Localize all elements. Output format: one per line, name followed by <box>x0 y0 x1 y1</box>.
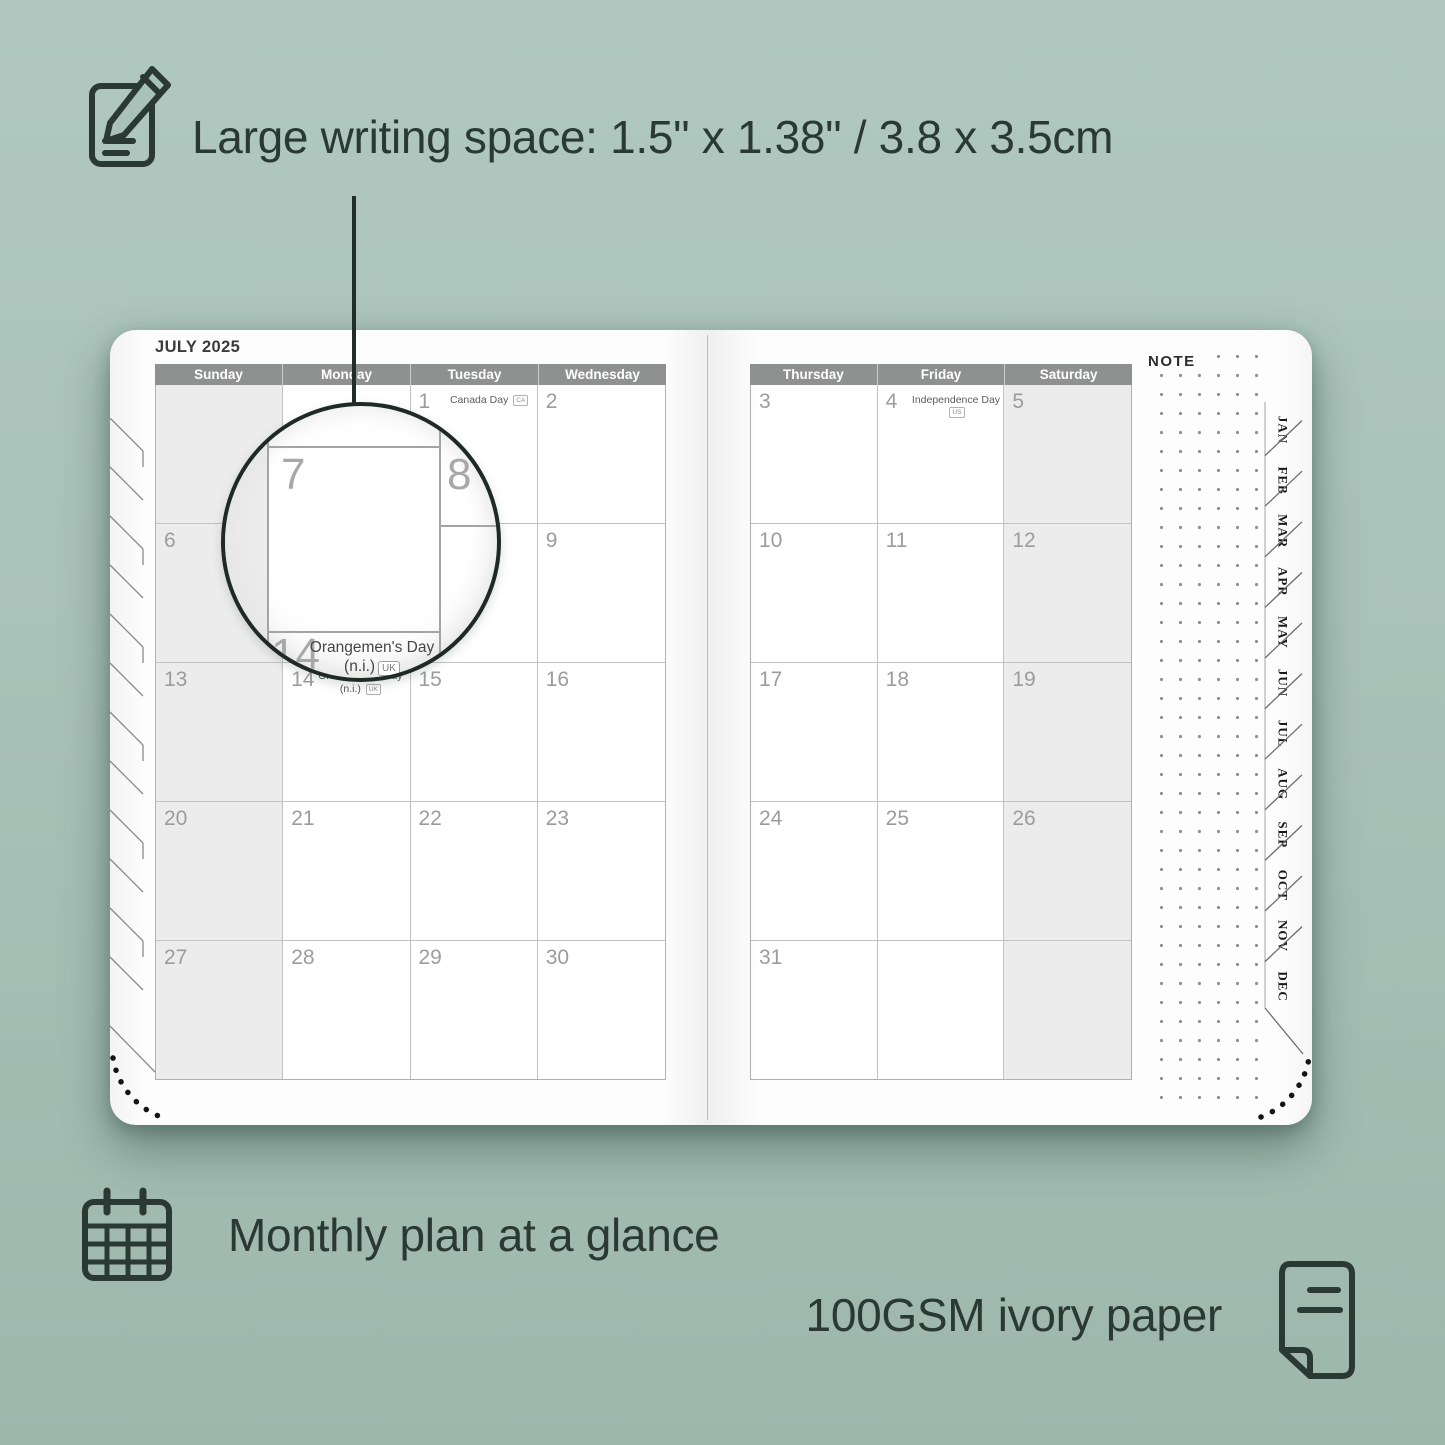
chevron-line <box>110 516 143 549</box>
date-number: 31 <box>759 946 782 970</box>
calendar-cell-13: 13 <box>156 663 283 802</box>
calendar-cell-23: 23 <box>538 802 665 941</box>
date-number: 11 <box>886 529 908 553</box>
chevron-line <box>110 467 143 500</box>
chevron-line <box>110 418 143 451</box>
date-number: 16 <box>546 668 569 692</box>
paper-sheet-icon <box>1272 1258 1360 1387</box>
calendar-cell-3: 3 <box>751 385 878 524</box>
month-tab-feb: FEB <box>1276 466 1291 494</box>
date-number: 1 <box>419 390 431 414</box>
day-header-row: ThursdayFridaySaturday <box>750 364 1132 385</box>
calendar-cell-15: 15 <box>411 663 538 802</box>
month-tab-jan: JAN <box>1276 416 1291 444</box>
note-label: NOTE <box>1148 353 1201 370</box>
holiday-label: Independence Day US <box>912 394 1001 418</box>
date-number: 4 <box>886 390 898 414</box>
month-tab-oct: OCT <box>1276 870 1291 901</box>
date-number: 20 <box>164 807 187 831</box>
date-number: 13 <box>164 668 187 692</box>
calendar-cell-31: 31 <box>751 941 878 1079</box>
month-tab-strip: JANFEBMARAPRMAYJUNJULAUGSEPOCTNOVDEC <box>1253 330 1312 1125</box>
date-number: 23 <box>546 807 569 831</box>
calendar-cell-16: 16 <box>538 663 665 802</box>
day-header-wednesday: Wednesday <box>539 364 666 385</box>
date-number: 28 <box>291 946 314 970</box>
date-number: 5 <box>1012 390 1024 414</box>
month-tab-may: MAY <box>1276 616 1291 649</box>
calendar-cell-25: 25 <box>878 802 1005 941</box>
month-tab-dec: DEC <box>1276 971 1291 1001</box>
date-number: 3 <box>759 390 771 414</box>
chevron-line <box>110 859 143 892</box>
page-gutter <box>707 335 708 1120</box>
holiday-line2: (n.i.) UK <box>313 683 407 696</box>
holiday-line2: (n.i.) <box>344 658 375 675</box>
calendar-cell-11: 11 <box>878 524 1005 663</box>
country-badge: CA <box>513 395 528 406</box>
calendar-cell-30: 30 <box>538 941 665 1079</box>
note-dot-grid: NOTE <box>1146 354 1258 1110</box>
day-header-saturday: Saturday <box>1005 364 1132 385</box>
country-badge: UK <box>378 661 400 676</box>
date-number: 22 <box>419 807 442 831</box>
month-tab-apr: APR <box>1276 567 1291 597</box>
callout-line <box>352 196 356 406</box>
calendar-cell-26: 26 <box>1004 802 1131 941</box>
magnified-grid-line <box>267 446 441 448</box>
calendar-cell-27: 27 <box>156 941 283 1079</box>
calendar-cell-9: 9 <box>538 524 665 663</box>
month-tab-mar: MAR <box>1276 514 1291 548</box>
country-badge: UK <box>366 684 381 695</box>
tab-cut-line-bottom <box>1265 1008 1303 1054</box>
day-header-row: SundayMondayTuesdayWednesday <box>155 364 666 385</box>
date-number: 24 <box>759 807 782 831</box>
month-tab-nov: NOV <box>1276 920 1291 952</box>
calendar-cell-14: 14Orangemen's Day(n.i.) UK <box>283 663 410 802</box>
planner-spread: JULY 2025 SundayMondayTuesdayWednesday1C… <box>110 330 1312 1125</box>
date-number: 29 <box>419 946 442 970</box>
date-number: 10 <box>759 529 782 553</box>
product-image: Large writing space: 1.5" x 1.38" / 3.8 … <box>0 0 1445 1445</box>
day-header-tuesday: Tuesday <box>411 364 539 385</box>
date-number: 18 <box>886 668 909 692</box>
calendar-cell-12: 12 <box>1004 524 1131 663</box>
month-tab-jul: JUL <box>1276 720 1291 748</box>
calendar-cell-empty <box>1004 941 1131 1079</box>
calendar-cell-24: 24 <box>751 802 878 941</box>
paper-caption: 100GSM ivory paper <box>806 1288 1222 1342</box>
magnifier-circle: 7 8 14 Orangemen's Day (n.i.)UK <box>221 402 501 682</box>
calendar-cell-29: 29 <box>411 941 538 1079</box>
calendar-cell-20: 20 <box>156 802 283 941</box>
writing-space-caption: Large writing space: 1.5" x 1.38" / 3.8 … <box>192 110 1113 164</box>
calendar-cell-10: 10 <box>751 524 878 663</box>
date-number: 26 <box>1012 807 1035 831</box>
calendar-grid-right: ThursdayFridaySaturday34Independence Day… <box>750 364 1132 1080</box>
calendar-cell-18: 18 <box>878 663 1005 802</box>
calendar-cell-4: 4Independence Day US <box>878 385 1005 524</box>
country-badge: US <box>949 407 964 418</box>
chevron-line <box>110 663 143 696</box>
chevron-line <box>110 712 143 745</box>
date-number: 25 <box>886 807 909 831</box>
day-header-thursday: Thursday <box>750 364 878 385</box>
month-title: JULY 2025 <box>155 338 240 357</box>
calendar-cell-22: 22 <box>411 802 538 941</box>
magnified-holiday-label: Orangemen's Day (n.i.)UK <box>307 638 437 676</box>
calendar-cell-19: 19 <box>1004 663 1131 802</box>
holiday-line1: Orangemen's Day <box>310 639 434 656</box>
monthly-plan-caption: Monthly plan at a glance <box>228 1208 719 1262</box>
day-header-friday: Friday <box>878 364 1006 385</box>
calendar-cell-5: 5 <box>1004 385 1131 524</box>
day-header-sunday: Sunday <box>155 364 283 385</box>
magnified-date-7: 7 <box>281 450 305 500</box>
day-header-monday: Monday <box>283 364 411 385</box>
page-edge-chevrons <box>109 418 161 1098</box>
calendar-cell-28: 28 <box>283 941 410 1079</box>
chevron-line <box>110 908 143 941</box>
magnified-date-8: 8 <box>447 450 471 500</box>
month-grid-body: 34Independence Day US5101112171819242526… <box>750 385 1132 1080</box>
date-number: 30 <box>546 946 569 970</box>
calendar-cell-2: 2 <box>538 385 665 524</box>
date-number: 21 <box>291 807 314 831</box>
chevron-line <box>110 761 143 794</box>
date-number: 12 <box>1012 529 1035 553</box>
month-tab-aug: AUG <box>1276 768 1291 800</box>
date-number: 9 <box>546 529 558 553</box>
chevron-line <box>110 614 143 647</box>
chevron-corner <box>110 1026 155 1072</box>
date-number: 19 <box>1012 668 1035 692</box>
magnified-weekend-shade <box>225 406 267 678</box>
date-number: 17 <box>759 668 782 692</box>
calendar-cell-empty <box>878 941 1005 1079</box>
writing-pencil-icon <box>84 64 180 177</box>
chevron-line <box>110 565 143 598</box>
calendar-cell-17: 17 <box>751 663 878 802</box>
chevron-line <box>110 810 143 843</box>
date-number: 6 <box>164 529 176 553</box>
calendar-icon <box>80 1186 174 1289</box>
month-tab-jun: JUN <box>1276 669 1291 697</box>
magnified-grid-line <box>439 525 497 527</box>
chevron-line <box>110 957 143 990</box>
calendar-cell-21: 21 <box>283 802 410 941</box>
holiday-label: Canada Day CA <box>445 394 534 406</box>
date-number: 2 <box>546 390 558 414</box>
date-number: 27 <box>164 946 187 970</box>
